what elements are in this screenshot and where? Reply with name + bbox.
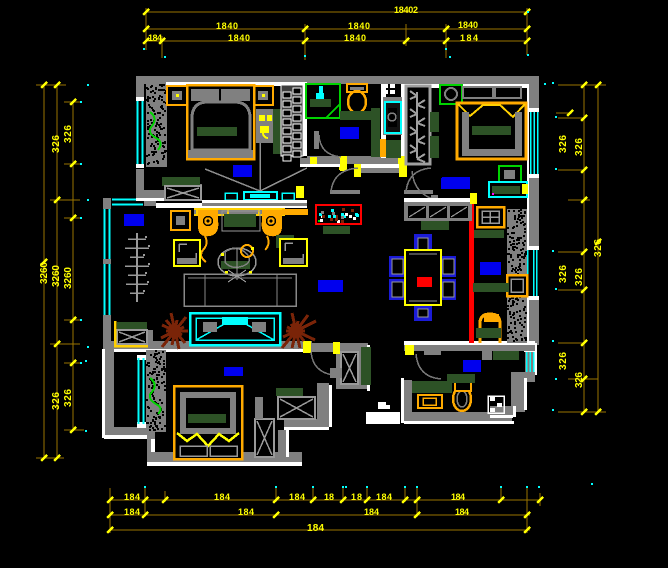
svg-text:3260: 3260 — [39, 262, 50, 284]
svg-text:326: 326 — [63, 125, 74, 143]
svg-text:326: 326 — [51, 392, 62, 410]
svg-text:184: 184 — [451, 492, 465, 502]
svg-text:184: 184 — [238, 507, 254, 517]
svg-text:326: 326 — [574, 138, 585, 156]
svg-text:1840: 1840 — [348, 21, 370, 31]
svg-text:326: 326 — [558, 135, 569, 153]
svg-text:18: 18 — [351, 492, 362, 502]
svg-text:184: 184 — [214, 492, 230, 502]
svg-text:1840: 1840 — [228, 33, 250, 43]
svg-text:326: 326 — [558, 352, 569, 370]
svg-text:1840: 1840 — [458, 20, 478, 30]
svg-text:326: 326 — [574, 372, 585, 388]
svg-text:326: 326 — [574, 268, 585, 286]
svg-text:184: 184 — [376, 492, 392, 502]
svg-text:184: 184 — [289, 492, 305, 502]
svg-text:3260: 3260 — [63, 267, 74, 289]
svg-text:1840: 1840 — [344, 33, 366, 43]
svg-text:184: 184 — [455, 507, 469, 517]
svg-text:184: 184 — [364, 507, 379, 517]
svg-text:18402: 18402 — [394, 5, 418, 15]
svg-text:18: 18 — [324, 492, 334, 502]
svg-text:1840: 1840 — [216, 21, 238, 31]
svg-text:184: 184 — [460, 33, 478, 43]
svg-text:184: 184 — [148, 33, 162, 43]
svg-text:326: 326 — [63, 389, 74, 407]
svg-text:184: 184 — [307, 523, 324, 534]
svg-text:326: 326 — [51, 135, 62, 153]
svg-text:184: 184 — [124, 507, 140, 517]
svg-text:184: 184 — [124, 492, 140, 502]
svg-text:3260: 3260 — [51, 265, 62, 287]
svg-text:326: 326 — [558, 265, 569, 283]
svg-text:326: 326 — [593, 239, 604, 257]
